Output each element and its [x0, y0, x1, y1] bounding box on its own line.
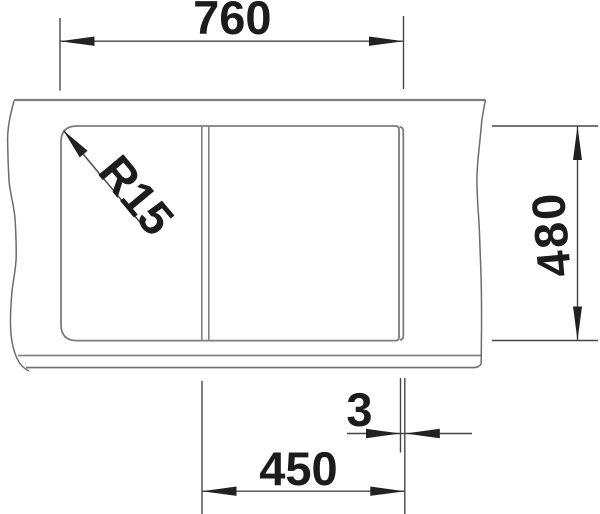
svg-text:R15: R15 — [89, 145, 185, 245]
svg-text:760: 760 — [193, 0, 271, 44]
svg-text:480: 480 — [521, 189, 581, 279]
svg-text:450: 450 — [259, 442, 337, 495]
svg-text:3: 3 — [346, 383, 372, 436]
